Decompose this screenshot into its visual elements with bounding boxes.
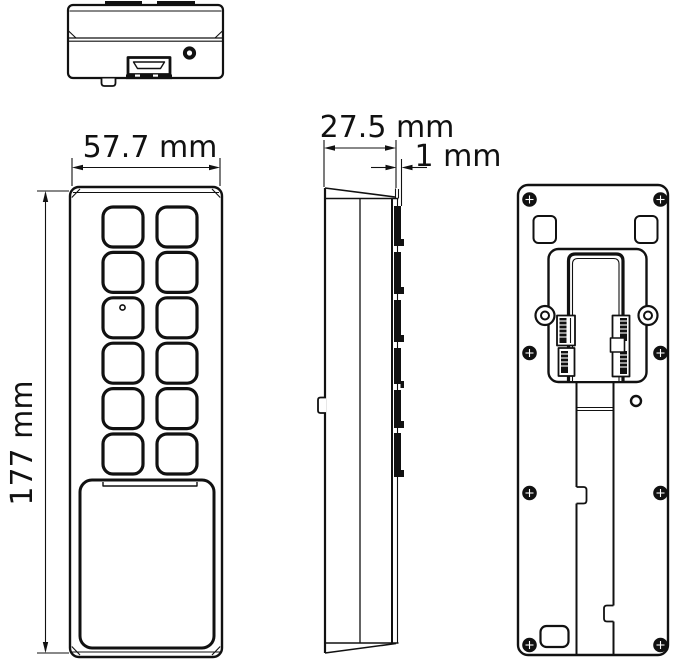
technical-drawing: 57.7 mm 177 mm 27.5 mm 1 mm <box>0 0 673 663</box>
arrowhead <box>402 165 413 170</box>
screw <box>653 346 668 361</box>
usb-port-base <box>126 75 172 80</box>
usb-port <box>126 58 172 80</box>
mounting-slot <box>635 216 658 243</box>
top-view <box>68 1 223 86</box>
dim-lip-label: 1 mm <box>414 139 501 174</box>
dimension-front-height: 177 mm <box>5 191 69 653</box>
usb-port-housing <box>128 58 170 75</box>
arrowhead <box>209 165 220 170</box>
bottom-recess <box>541 626 569 647</box>
back-view <box>518 185 668 655</box>
mounting-hook <box>394 348 401 384</box>
keypad-button <box>157 252 197 292</box>
technical-drawing-page: 57.7 mm 177 mm 27.5 mm 1 mm <box>0 0 673 663</box>
usb-base-notch <box>153 75 158 77</box>
hook-nub <box>401 335 405 342</box>
mounting-hook <box>394 252 401 294</box>
round-port-hole <box>185 48 194 57</box>
hook-nub <box>401 239 405 246</box>
mounting-hook <box>394 206 401 246</box>
keypad-button <box>103 252 143 292</box>
side-view-body <box>325 188 398 653</box>
dim-width-label: 57.7 mm <box>83 130 218 165</box>
screw <box>653 486 668 501</box>
screw <box>522 192 537 207</box>
arrowhead <box>324 145 335 150</box>
arrowhead <box>43 191 48 202</box>
keypad-button <box>157 343 197 383</box>
channel-hook <box>577 487 587 504</box>
arrowhead <box>386 165 397 170</box>
arrowhead <box>385 145 396 150</box>
screw <box>653 638 668 653</box>
hook-nub <box>401 381 405 388</box>
boss-hole <box>644 312 652 320</box>
mounting-hook <box>394 300 401 342</box>
channel-hook <box>604 606 614 622</box>
screw <box>653 192 668 207</box>
boss-hole <box>541 312 549 320</box>
screw <box>522 486 537 501</box>
keypad-button <box>157 389 197 429</box>
keypad-button <box>157 207 197 247</box>
mounting-slot <box>534 216 557 243</box>
terminal-connector <box>559 348 575 376</box>
bottom-tab <box>102 79 116 87</box>
terminal-connector <box>611 316 630 377</box>
screw <box>522 638 537 653</box>
arrowhead <box>43 642 48 653</box>
front-view <box>70 187 222 657</box>
hook-nub <box>401 421 405 428</box>
screw-boss <box>639 306 658 325</box>
keypad-button <box>103 343 143 383</box>
keypad-button <box>103 434 143 474</box>
dim-height-label: 177 mm <box>5 380 40 505</box>
connector-tab <box>611 338 625 352</box>
side-view <box>318 188 404 653</box>
led-indicator-hole <box>120 305 125 310</box>
keypad-button <box>103 389 143 429</box>
mounting-hook <box>394 433 401 477</box>
small-hole <box>631 396 641 406</box>
screw-boss <box>536 306 555 325</box>
keypad-button <box>103 298 143 338</box>
screw <box>522 346 537 361</box>
terminal-connector <box>557 316 575 346</box>
keypad-button <box>157 434 197 474</box>
hook-nub <box>401 287 405 294</box>
connector-pins <box>560 318 567 343</box>
dimension-front-width: 57.7 mm <box>72 130 220 186</box>
arrowhead <box>72 165 83 170</box>
usb-base-notch <box>135 75 140 77</box>
keypad-button <box>103 207 143 247</box>
keypad-button <box>157 298 197 338</box>
hook-nub <box>401 470 405 477</box>
card-reader-area <box>80 480 214 648</box>
mounting-hook <box>394 390 401 428</box>
side-tab <box>318 398 326 414</box>
